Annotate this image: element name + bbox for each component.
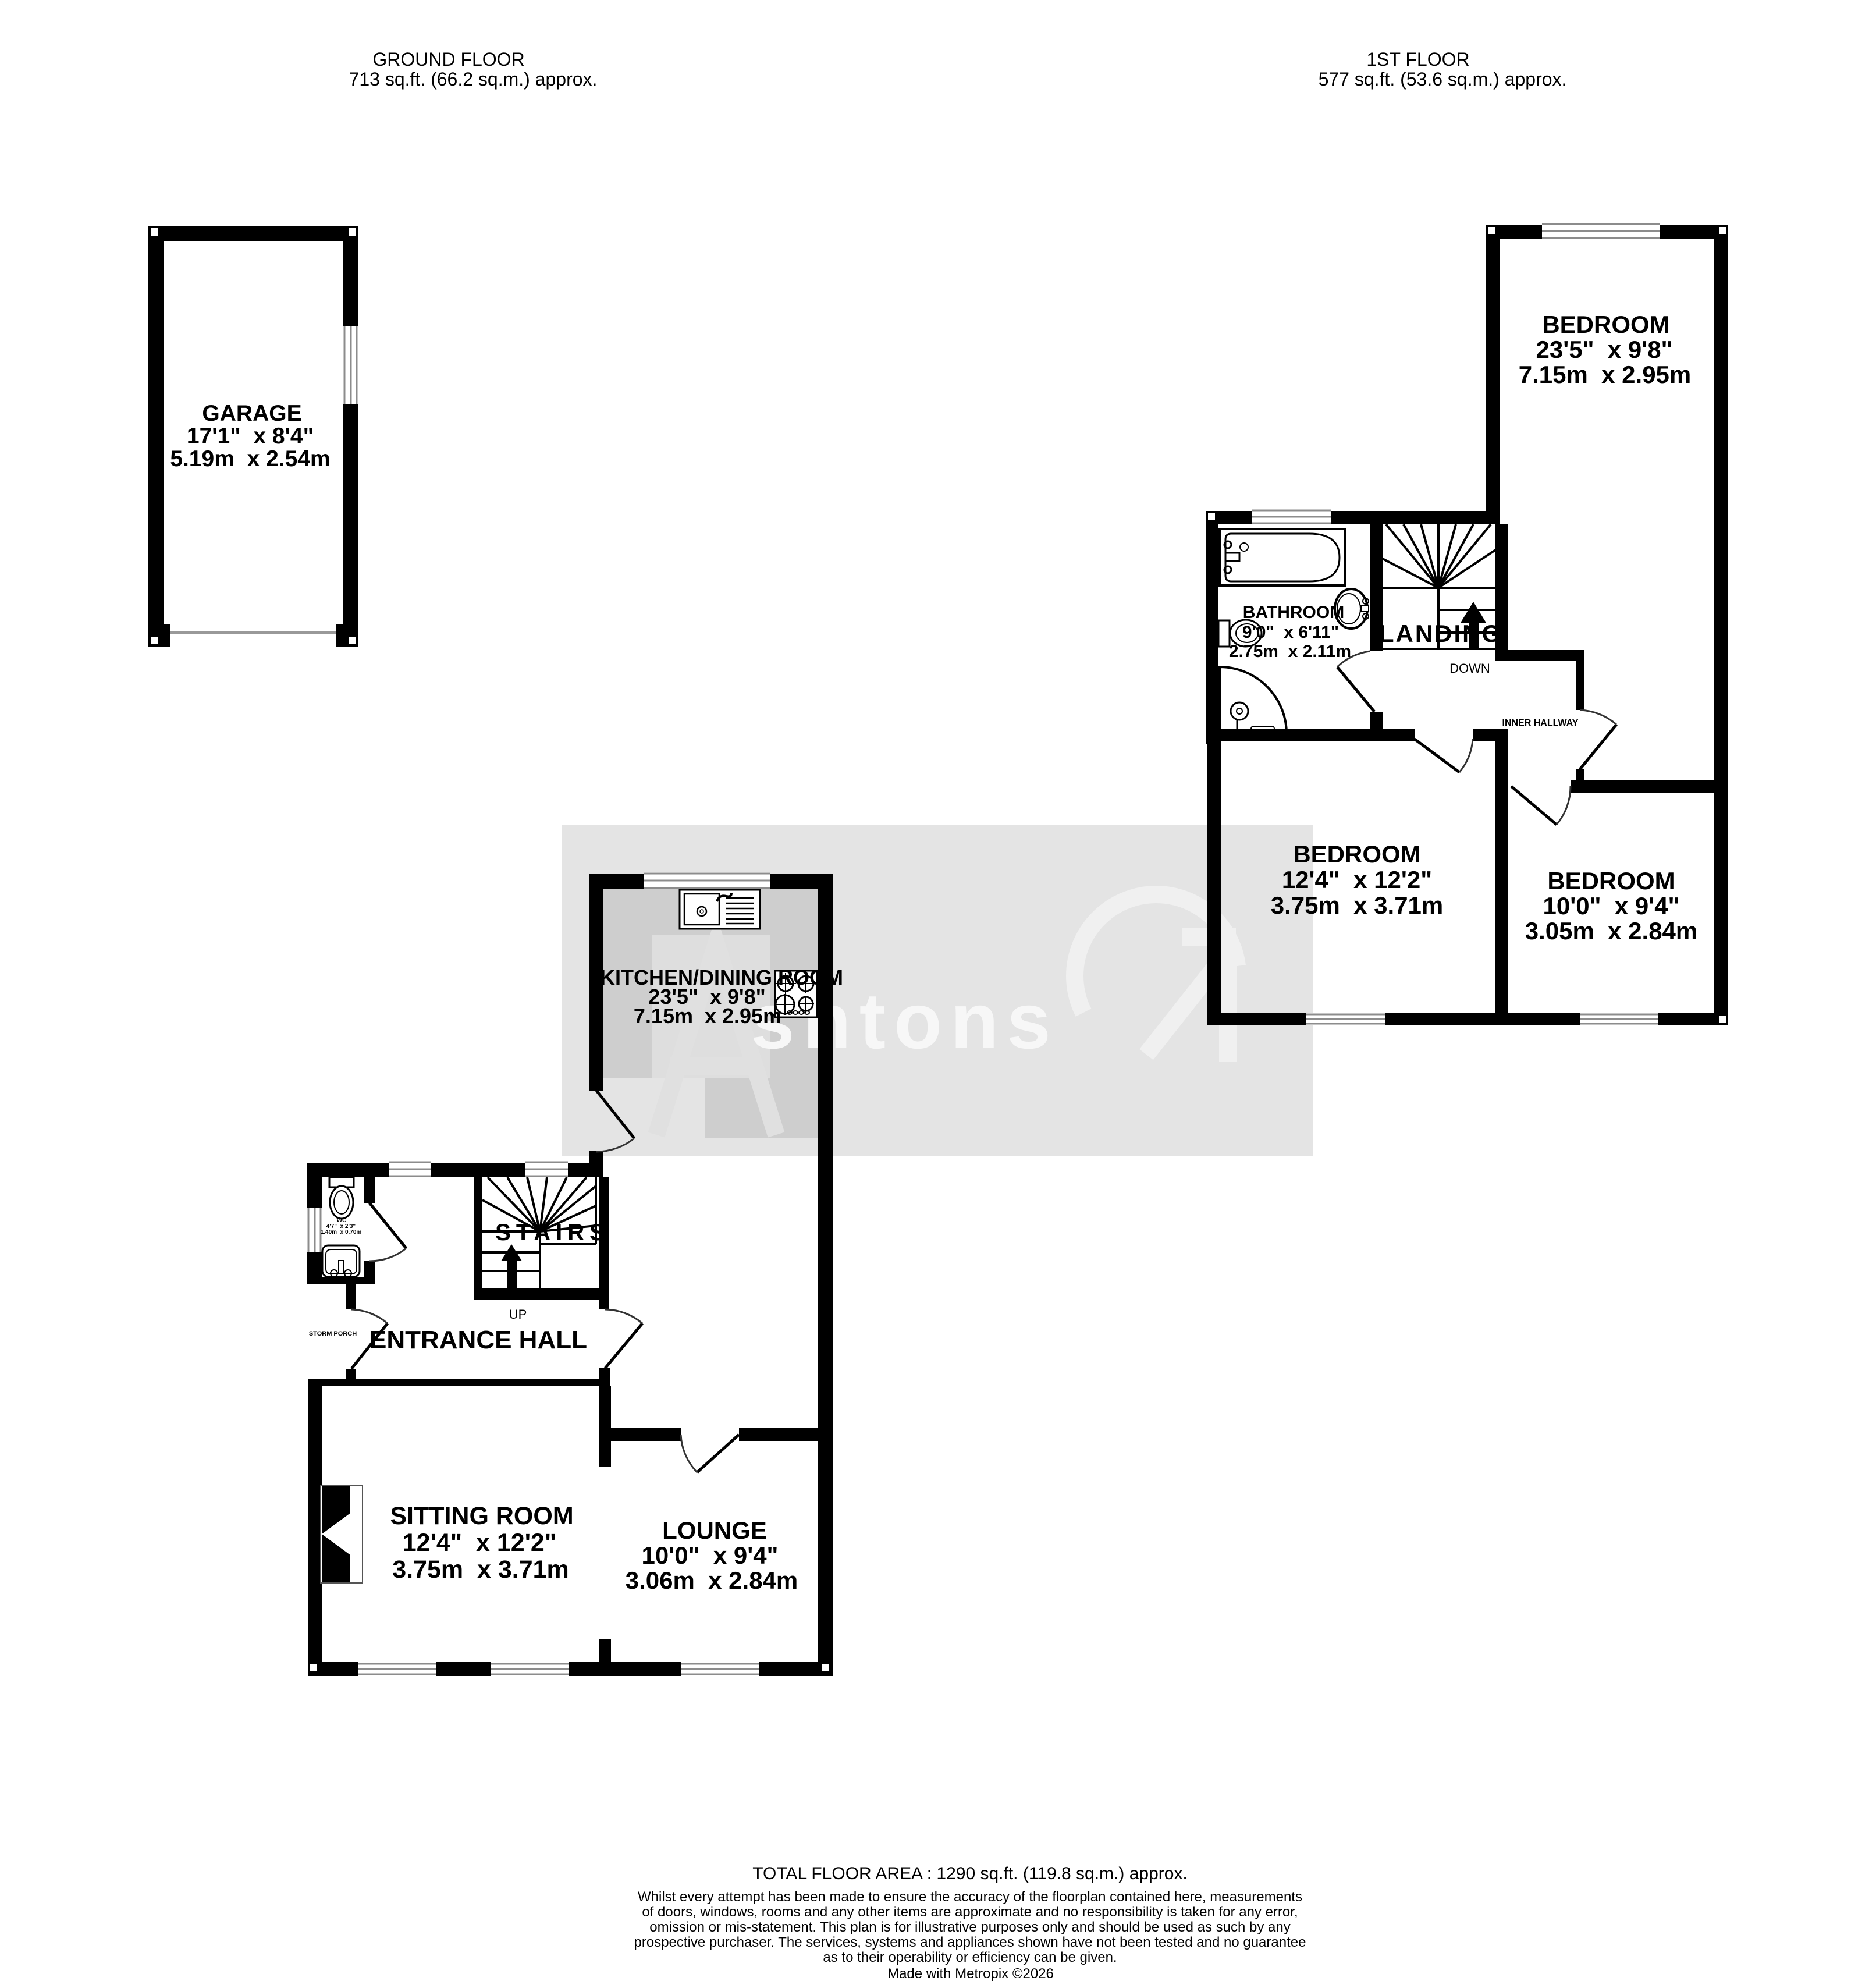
- svg-text:BEDROOM: BEDROOM: [1547, 867, 1675, 894]
- svg-text:ENTRANCE HALL: ENTRANCE HALL: [369, 1326, 587, 1354]
- svg-text:7.15m x 2.95m: 7.15m x 2.95m: [634, 1004, 781, 1028]
- svg-text:713 sq.ft. (66.2 sq.m.) approx: 713 sq.ft. (66.2 sq.m.) approx.: [349, 69, 598, 90]
- svg-text:5.19m x 2.54m: 5.19m x 2.54m: [170, 446, 330, 471]
- svg-text:STORM PORCH: STORM PORCH: [309, 1330, 357, 1337]
- svg-text:23'5" x 9'8": 23'5" x 9'8": [1536, 336, 1673, 363]
- svg-text:DOWN: DOWN: [1449, 661, 1490, 676]
- svg-text:UP: UP: [509, 1307, 527, 1322]
- svg-text:LANDING: LANDING: [1379, 620, 1502, 647]
- svg-text:INNER HALLWAY: INNER HALLWAY: [1502, 718, 1579, 728]
- svg-text:10'0" x 9'4": 10'0" x 9'4": [642, 1542, 779, 1569]
- svg-text:1.40m x 0.70m: 1.40m x 0.70m: [321, 1229, 362, 1236]
- svg-text:of doors, windows, rooms and a: of doors, windows, rooms and any other i…: [642, 1904, 1298, 1920]
- svg-text:9'0" x 6'11": 9'0" x 6'11": [1242, 623, 1339, 642]
- svg-text:SITTING ROOM: SITTING ROOM: [390, 1502, 573, 1530]
- svg-text:7.15m x 2.95m: 7.15m x 2.95m: [1519, 361, 1692, 388]
- svg-text:10'0" x 9'4": 10'0" x 9'4": [1543, 892, 1680, 920]
- svg-text:3.75m x 3.71m: 3.75m x 3.71m: [1271, 892, 1444, 919]
- svg-text:3.05m x 2.84m: 3.05m x 2.84m: [1525, 917, 1698, 945]
- svg-text:BEDROOM: BEDROOM: [1293, 840, 1420, 868]
- svg-text:TOTAL FLOOR AREA : 1290 sq.ft.: TOTAL FLOOR AREA : 1290 sq.ft. (119.8 sq…: [752, 1864, 1188, 1883]
- svg-text:2.75m x 2.11m: 2.75m x 2.11m: [1229, 642, 1351, 661]
- svg-text:LOUNGE: LOUNGE: [662, 1517, 767, 1544]
- svg-text:17'1" x 8'4": 17'1" x 8'4": [187, 424, 314, 449]
- svg-text:12'4" x 12'2": 12'4" x 12'2": [403, 1529, 556, 1557]
- svg-text:BEDROOM: BEDROOM: [1542, 311, 1669, 338]
- svg-text:as to their operability or eff: as to their operability or efficiency ca…: [823, 1950, 1117, 1965]
- svg-text:1ST FLOOR: 1ST FLOOR: [1366, 49, 1469, 70]
- svg-text:omission or mis-statement. Thi: omission or mis-statement. This plan is …: [649, 1919, 1290, 1935]
- svg-text:3.75m x 3.71m: 3.75m x 3.71m: [392, 1556, 569, 1584]
- svg-text:577 sq.ft. (53.6 sq.m.) approx: 577 sq.ft. (53.6 sq.m.) approx.: [1319, 69, 1567, 90]
- svg-text:Made with Metropix ©2026: Made with Metropix ©2026: [887, 1966, 1054, 1981]
- svg-text:3.06m x 2.84m: 3.06m x 2.84m: [626, 1567, 798, 1594]
- svg-text:prospective purchaser. The ser: prospective purchaser. The services, sys…: [634, 1934, 1306, 1950]
- svg-text:GROUND FLOOR: GROUND FLOOR: [372, 49, 524, 70]
- svg-text:Whilst every attempt has been: Whilst every attempt has been made to en…: [638, 1889, 1302, 1905]
- svg-text:12'4" x 12'2": 12'4" x 12'2": [1282, 866, 1432, 893]
- svg-text:STAIRS: STAIRS: [495, 1220, 610, 1245]
- svg-text:BATHROOM: BATHROOM: [1243, 603, 1344, 622]
- svg-text:GARAGE: GARAGE: [202, 401, 301, 426]
